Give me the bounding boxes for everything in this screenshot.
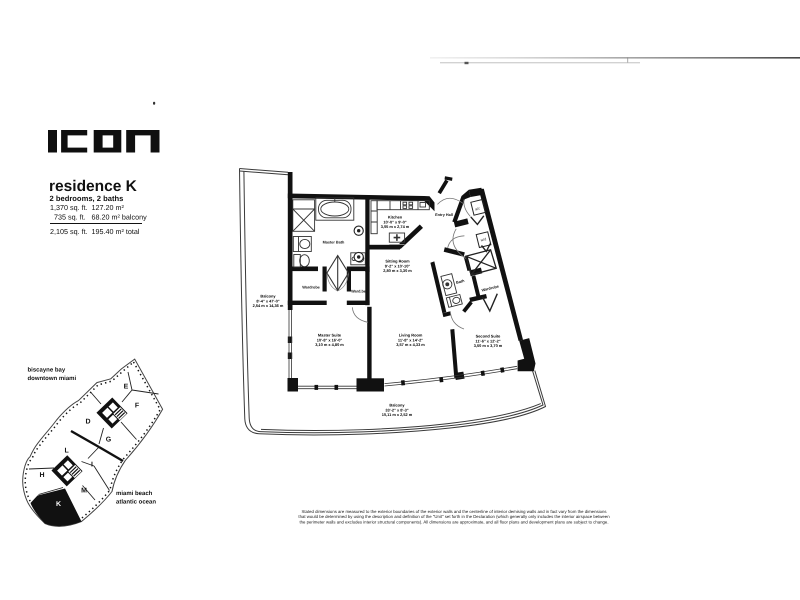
svg-text:3,10 m x 4,80 m: 3,10 m x 4,80 m — [315, 342, 344, 347]
svg-text:Wardrobe: Wardrobe — [302, 285, 320, 289]
svg-text:atlantic ocean: atlantic ocean — [116, 499, 156, 506]
svg-text:the perimeter walls and exclud: the perimeter walls and excludes interio… — [299, 519, 608, 524]
svg-text:F: F — [135, 403, 140, 410]
svg-text:10,11 m x 2,52 m: 10,11 m x 2,52 m — [382, 412, 413, 417]
svg-text:3,50 m x 3,70 m: 3,50 m x 3,70 m — [474, 343, 503, 348]
svg-text:residence K: residence K — [49, 178, 138, 195]
svg-text:biscayne bay: biscayne bay — [28, 367, 66, 374]
svg-text:G: G — [106, 437, 112, 444]
svg-text:2,80 m x 3,30 m: 2,80 m x 3,30 m — [383, 268, 412, 273]
svg-text:2,54 m x 14,36 m: 2,54 m x 14,36 m — [253, 303, 284, 308]
svg-text:I: I — [91, 461, 93, 468]
svg-text:3,05 m x 2,74 m: 3,05 m x 2,74 m — [381, 224, 410, 229]
svg-text:miami beach: miami beach — [116, 490, 153, 497]
svg-text:E: E — [124, 384, 129, 391]
svg-text:K: K — [56, 501, 61, 508]
svg-text:D: D — [85, 419, 90, 426]
svg-text:Master Bath: Master Bath — [323, 241, 345, 245]
svg-text:downtown miami: downtown miami — [28, 375, 77, 382]
svg-text:L: L — [65, 447, 70, 454]
svg-text:M: M — [81, 488, 87, 495]
svg-text:H: H — [39, 472, 44, 479]
svg-text:735 sq. ft. 68.20 m² balcony: 735 sq. ft. 68.20 m² balcony — [54, 212, 147, 221]
svg-text:3,57 m x 4,33 m: 3,57 m x 4,33 m — [396, 342, 425, 347]
svg-text:Entry Hall: Entry Hall — [435, 213, 453, 217]
svg-text:1,370 sq. ft. 127.20 m²: 1,370 sq. ft. 127.20 m² — [50, 203, 125, 212]
svg-text:Ward.be: Ward.be — [351, 290, 366, 294]
svg-text:2 bedrooms, 2 baths: 2 bedrooms, 2 baths — [50, 194, 124, 203]
svg-text:2,105 sq. ft. 195.40 m² total: 2,105 sq. ft. 195.40 m² total — [50, 227, 140, 236]
